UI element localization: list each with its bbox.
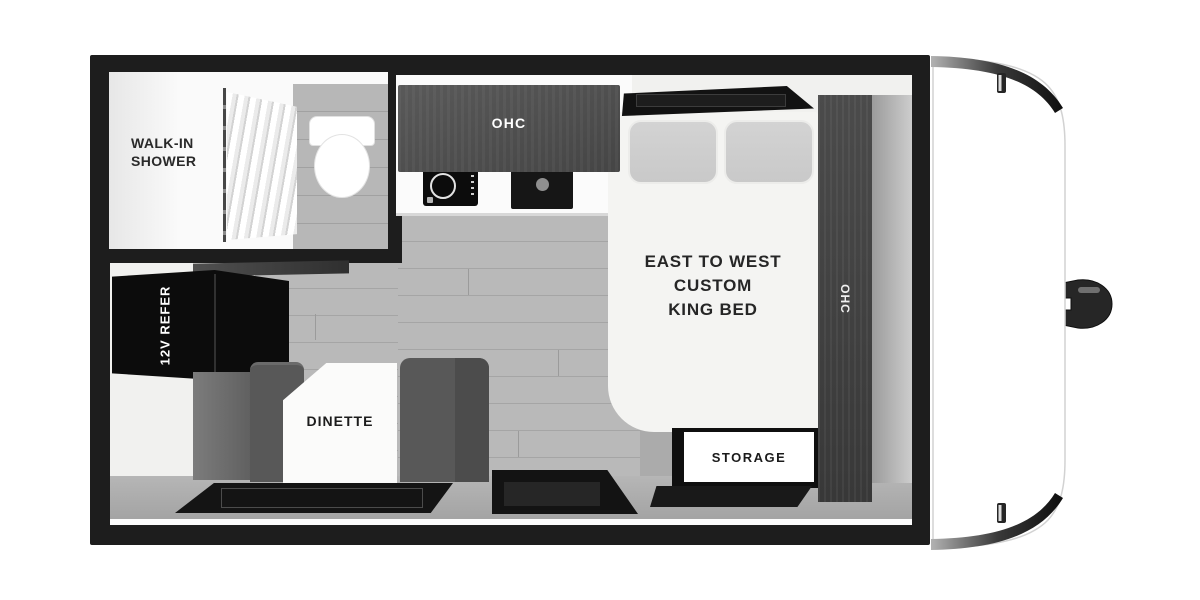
plank-seam	[558, 350, 559, 376]
floorplan-canvas: WALK-IN SHOWER EAST TO WEST CUSTOM KING …	[0, 0, 1200, 600]
plank-seam	[468, 269, 469, 295]
wardrobe-ohc-label: OHC	[838, 284, 852, 314]
toilet	[314, 134, 370, 198]
hitch-slot	[1078, 287, 1100, 293]
bed-label-line1: EAST TO WEST	[608, 250, 818, 274]
burner-ring-icon	[430, 173, 456, 199]
wardrobe-ohc: OHC	[818, 95, 872, 502]
walk-in-shower-label-line2: SHOWER	[131, 152, 291, 170]
storage-face: STORAGE	[684, 432, 814, 482]
wall-base-strip	[110, 519, 912, 525]
dinette-label: DINETTE	[283, 413, 397, 429]
storage-mat	[650, 486, 812, 507]
king-bed: EAST TO WEST CUSTOM KING BED	[608, 112, 818, 432]
cooktop	[423, 167, 478, 206]
bed-label-line3: KING BED	[608, 298, 818, 322]
entry-step-mat-inner	[504, 482, 600, 506]
pillow	[724, 120, 814, 184]
walk-in-shower-label-line1: WALK-IN	[131, 134, 291, 152]
walk-in-shower-label: WALK-IN SHOWER	[131, 134, 291, 170]
storage-box: STORAGE	[672, 428, 818, 488]
marker-light-top-highlight	[999, 75, 1002, 91]
kitchen-ohc-cabinet: OHC	[398, 85, 620, 172]
roof-vent-inner	[636, 94, 786, 107]
front-cap-body	[933, 58, 1065, 548]
marker-light-bottom-highlight	[999, 505, 1002, 521]
kitchen-sink	[511, 167, 573, 209]
cabinet-base	[193, 372, 251, 480]
dinette-bench-right	[400, 358, 489, 482]
bed-label-line2: CUSTOM	[608, 274, 818, 298]
bathroom-room: WALK-IN SHOWER	[95, 58, 402, 263]
plank-seam	[518, 431, 519, 457]
refrigerator-label-wrap: 12V REFER	[112, 270, 217, 380]
wardrobe-side-panel	[872, 95, 912, 483]
pillow	[628, 120, 718, 184]
storage-label: STORAGE	[712, 450, 787, 465]
refrigerator-label: 12V REFER	[157, 285, 172, 365]
plank-seam	[315, 314, 316, 340]
front-cap	[928, 48, 1128, 558]
entry-rug-border	[221, 488, 423, 508]
cooktop-controls	[471, 175, 474, 197]
bed-label: EAST TO WEST CUSTOM KING BED	[608, 250, 818, 322]
dinette-bench-backrest	[455, 358, 489, 482]
sink-drain-icon	[536, 178, 549, 191]
cooktop-badge	[427, 197, 433, 203]
entry-rug	[175, 483, 453, 513]
kitchen-ohc-label: OHC	[492, 115, 527, 131]
bathroom-interior: WALK-IN SHOWER	[109, 72, 388, 249]
